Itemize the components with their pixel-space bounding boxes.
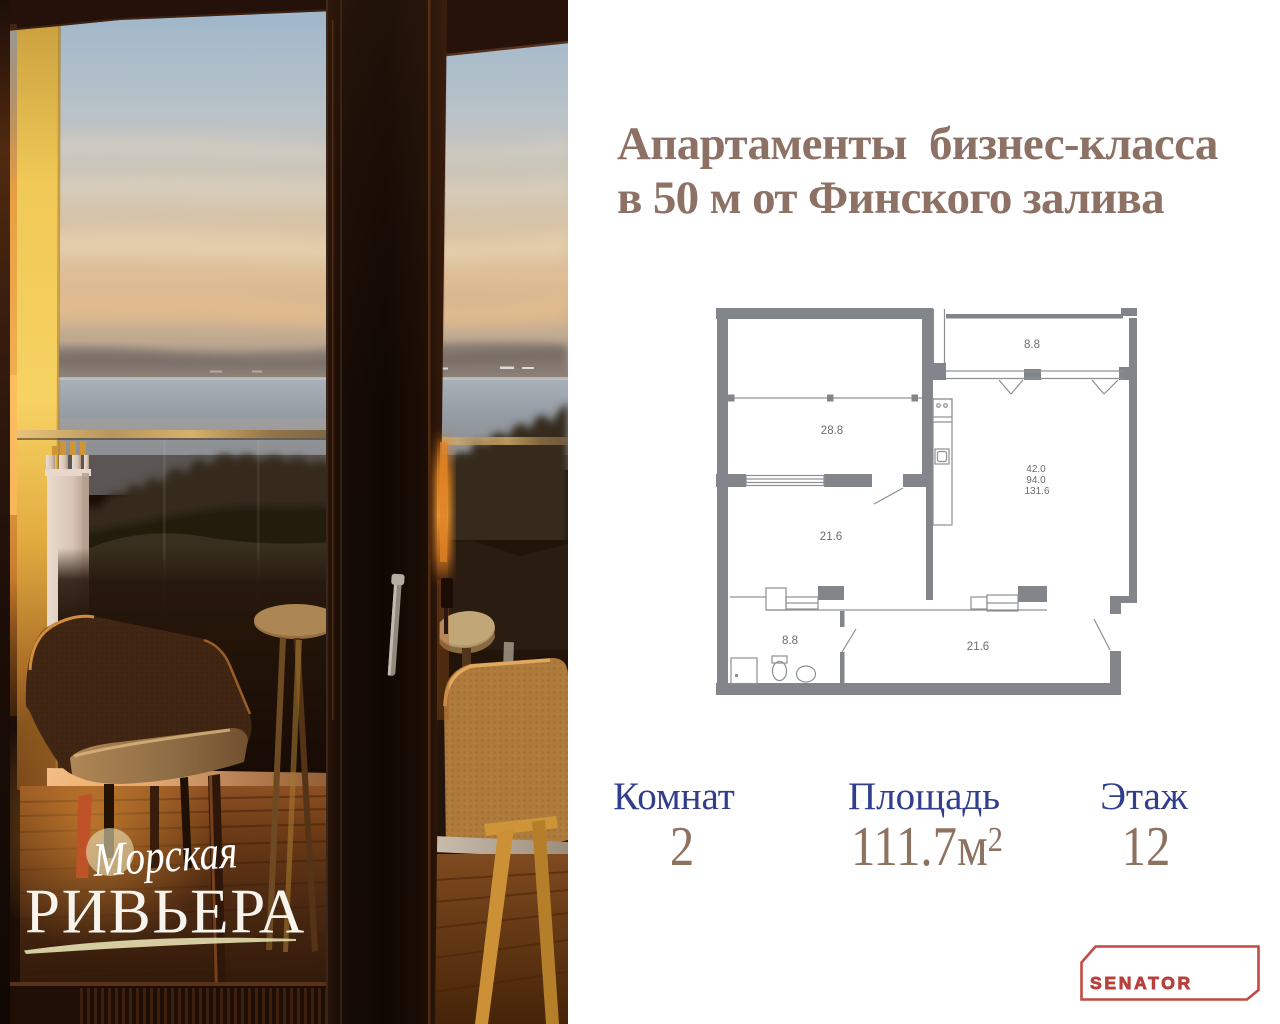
svg-text:8.8: 8.8 xyxy=(1024,339,1040,351)
svg-text:SENATOR: SENATOR xyxy=(1090,973,1193,993)
svg-text:РИВЬЕРА: РИВЬЕРА xyxy=(25,877,306,947)
svg-text:42.0: 42.0 xyxy=(1026,464,1046,475)
svg-text:21.6: 21.6 xyxy=(820,531,842,543)
svg-text:28.8: 28.8 xyxy=(821,425,843,437)
svg-text:94.0: 94.0 xyxy=(1026,475,1046,486)
svg-text:131.6: 131.6 xyxy=(1024,486,1049,497)
svg-text:21.6: 21.6 xyxy=(967,641,989,653)
svg-text:8.8: 8.8 xyxy=(782,635,798,647)
